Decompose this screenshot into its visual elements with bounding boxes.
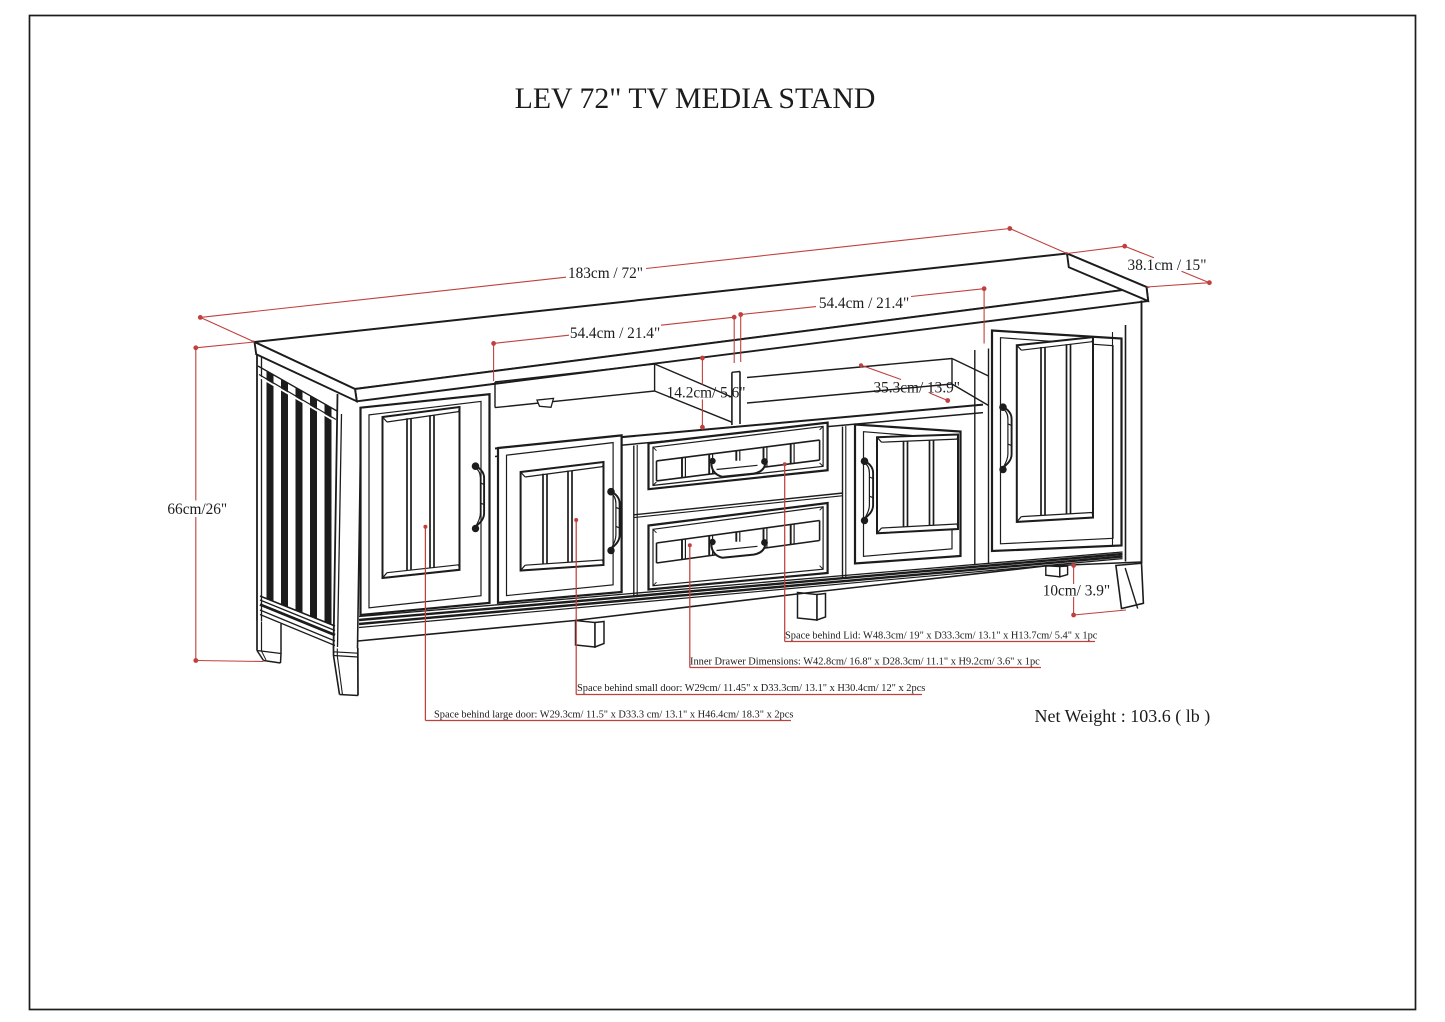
svg-text:Space behind large door: W29.3: Space behind large door: W29.3cm/ 11.5" …: [434, 710, 793, 721]
svg-text:10cm/ 3.9": 10cm/ 3.9": [1043, 583, 1110, 600]
svg-text:66cm/26": 66cm/26": [167, 501, 227, 518]
svg-text:Space behind Lid: W48.3cm/ 19": Space behind Lid: W48.3cm/ 19" x D33.3cm…: [785, 631, 1098, 642]
svg-text:183cm / 72": 183cm / 72": [568, 265, 643, 282]
svg-text:Net Weight : 103.6 ( lb ): Net Weight : 103.6 ( lb ): [1035, 706, 1211, 727]
svg-text:14.2cm/ 5.6": 14.2cm/ 5.6": [667, 385, 746, 402]
svg-text:Inner Drawer Dimensions: W42.8: Inner Drawer Dimensions: W42.8cm/ 16.8" …: [690, 657, 1040, 668]
svg-text:54.4cm / 21.4": 54.4cm / 21.4": [570, 325, 660, 342]
svg-text:38.1cm / 15": 38.1cm / 15": [1128, 257, 1207, 274]
svg-text:54.4cm / 21.4": 54.4cm / 21.4": [819, 295, 909, 312]
svg-text:Space behind small door: W29cm: Space behind small door: W29cm/ 11.45" x…: [577, 683, 925, 694]
svg-text:35.3cm/ 13.9": 35.3cm/ 13.9": [874, 380, 961, 397]
svg-text:LEV 72" TV MEDIA STAND: LEV 72" TV MEDIA STAND: [515, 82, 876, 115]
